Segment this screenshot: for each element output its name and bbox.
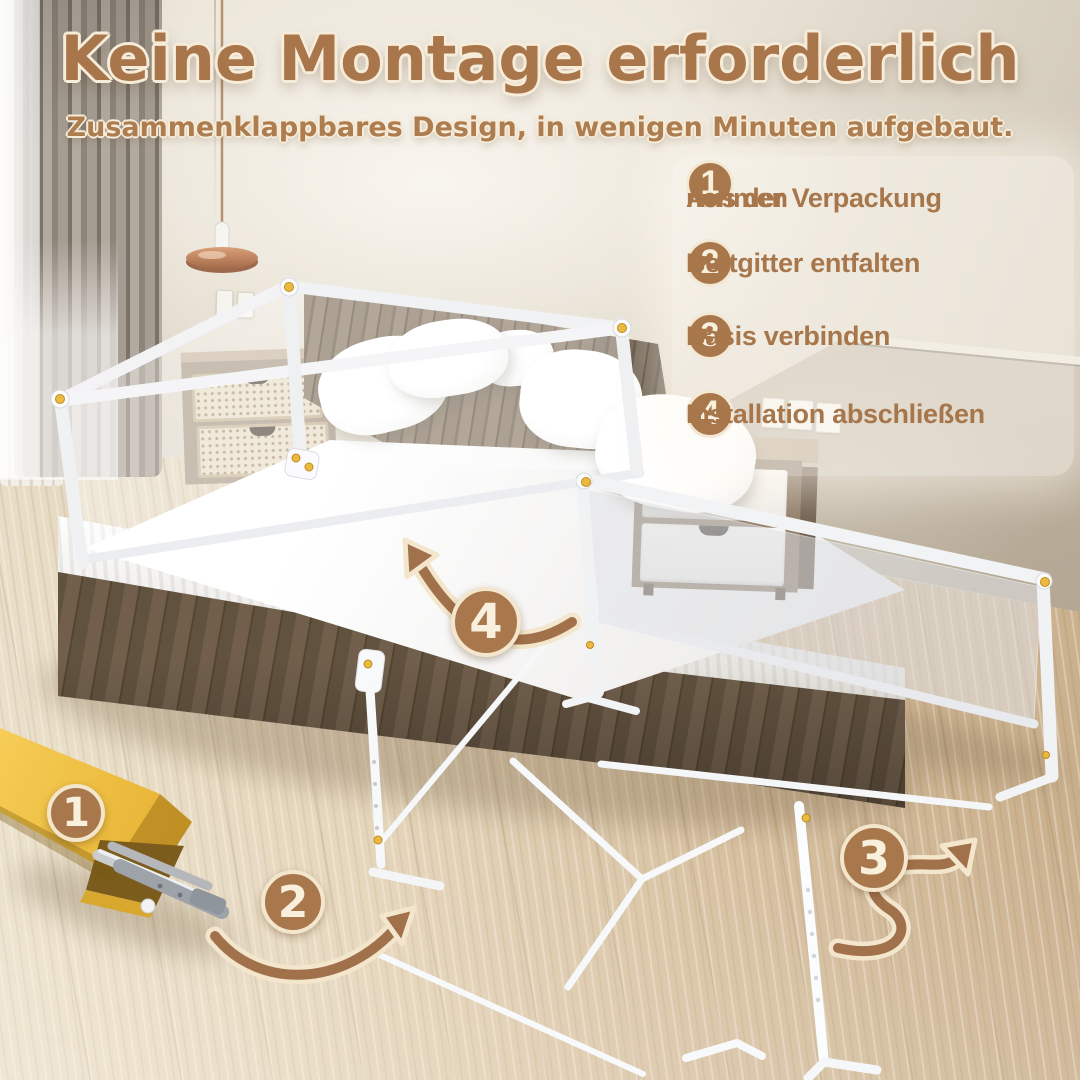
scene-marker-4: 4: [451, 587, 521, 657]
rail-support-leg: [355, 627, 560, 886]
step-label: Bettgitter entfalten: [686, 249, 920, 278]
step-label-line: nehmen: [686, 184, 788, 213]
bed-rail-standing: [566, 473, 1052, 797]
step-label: Basis verbinden: [686, 322, 890, 351]
scene-marker-1: 1: [47, 784, 105, 842]
packed-rails: [98, 846, 228, 916]
scene-marker-3: 3: [840, 824, 908, 892]
steps-list: 1 Aus der Verpackung nehmen 2 Bettgitter…: [672, 156, 1074, 476]
page-title: Keine Montage erforderlich: [0, 22, 1080, 95]
bed-rail-installed: [51, 278, 640, 566]
scene-marker-2: 2: [261, 870, 325, 934]
product-infographic: 1 Aus der Verpackung nehmen 2 Bettgitter…: [0, 0, 1080, 1080]
page-subtitle: Zusammenklappbares Design, in wenigen Mi…: [0, 112, 1080, 143]
step-label: Installation abschließen: [686, 400, 985, 429]
